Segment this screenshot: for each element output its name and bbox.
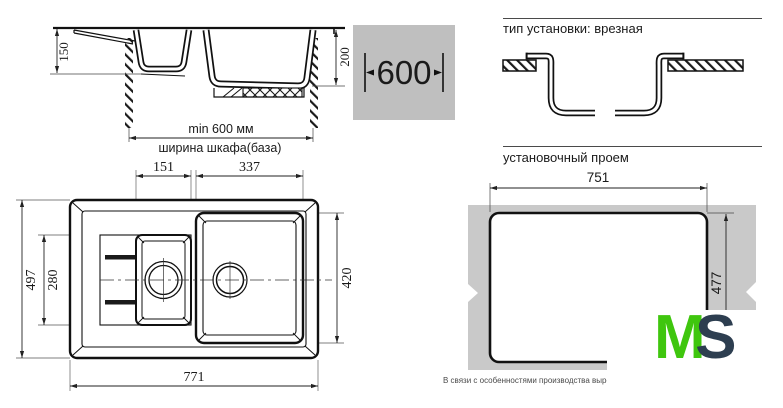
cabinet-width-label: ширина шкафа(база) (159, 141, 282, 155)
sink-rim-profile (526, 53, 685, 113)
drain-groove (105, 300, 136, 305)
svg-text:751: 751 (587, 170, 610, 185)
drain-groove (105, 255, 136, 260)
large-bowl (196, 213, 303, 343)
badge-value: 600 (376, 54, 431, 91)
small-bowl-section (136, 30, 189, 76)
mounting-detail (503, 53, 743, 113)
dim-bowl1-width: 151 (136, 160, 191, 178)
svg-text:337: 337 (239, 160, 260, 175)
svg-text:420: 420 (340, 268, 355, 289)
dim-bowl1-zone-depth: 280 (42, 235, 61, 325)
svg-text:771: 771 (184, 370, 205, 385)
install-type-heading: тип установки: врезная (503, 21, 643, 36)
svg-text:497: 497 (24, 270, 39, 291)
svg-text:477: 477 (709, 272, 724, 295)
sink-spec-sheet: 150 200 min 600 мм ширина шкафа(база) (0, 0, 783, 408)
dim-bowl2-depth-plan: 420 (335, 213, 355, 343)
large-bowl-section (206, 30, 313, 97)
svg-text:151: 151 (153, 160, 174, 175)
logo-letter-s: S (695, 303, 736, 372)
svg-text:200: 200 (337, 47, 352, 67)
svg-text:280: 280 (46, 270, 61, 291)
dim-overall-depth: 497 (20, 200, 39, 358)
countertop-right (668, 60, 743, 71)
dim-cabinet-width: min 600 мм ширина шкафа(база) (129, 122, 313, 155)
divider (503, 146, 762, 147)
production-note: В связи с особенностями производства выр… (443, 376, 607, 385)
logo-overlay: MS (607, 310, 783, 408)
side-section-view: 150 200 min 600 мм ширина шкафа(база) (50, 28, 352, 155)
opening-heading: установочный проем (503, 150, 629, 165)
min-width-label: min 600 мм (188, 122, 253, 136)
divider (503, 18, 762, 19)
dim-overall-width: 771 (70, 370, 318, 388)
cabinet-width-badge: 600 (353, 25, 455, 120)
brand-logo: MS (654, 307, 737, 369)
dim-bowl2-width: 337 (196, 160, 303, 178)
cabinet-wall-left (125, 38, 133, 128)
svg-text:150: 150 (56, 42, 71, 62)
plan-view: 151 337 497 280 (16, 160, 355, 391)
countertop-left (503, 60, 536, 71)
